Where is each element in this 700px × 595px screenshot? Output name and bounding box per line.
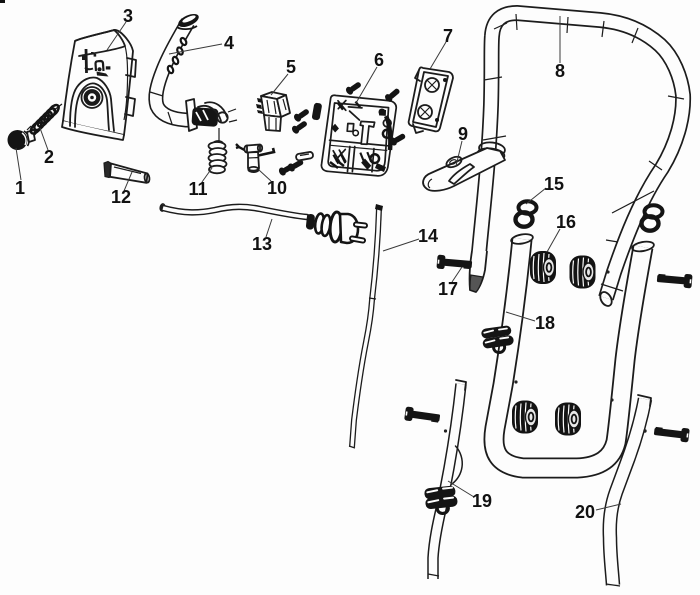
svg-text:14: 14: [418, 226, 438, 246]
svg-text:3: 3: [123, 6, 133, 26]
svg-text:15: 15: [544, 174, 564, 194]
svg-text:13: 13: [252, 234, 272, 254]
svg-text:7: 7: [443, 26, 453, 46]
svg-text:11: 11: [188, 179, 207, 199]
svg-text:9: 9: [458, 124, 468, 144]
svg-text:10: 10: [267, 178, 287, 198]
svg-text:4: 4: [224, 33, 234, 53]
svg-text:18: 18: [535, 313, 555, 333]
svg-text:8: 8: [555, 61, 565, 81]
svg-text:17: 17: [438, 279, 458, 299]
svg-text:12: 12: [111, 187, 131, 207]
svg-text:16: 16: [556, 212, 576, 232]
svg-text:5: 5: [286, 57, 296, 77]
svg-text:20: 20: [575, 502, 595, 522]
svg-text:1: 1: [15, 178, 25, 198]
svg-text:19: 19: [472, 491, 492, 511]
svg-text:2: 2: [44, 147, 54, 167]
svg-text:6: 6: [374, 50, 384, 70]
